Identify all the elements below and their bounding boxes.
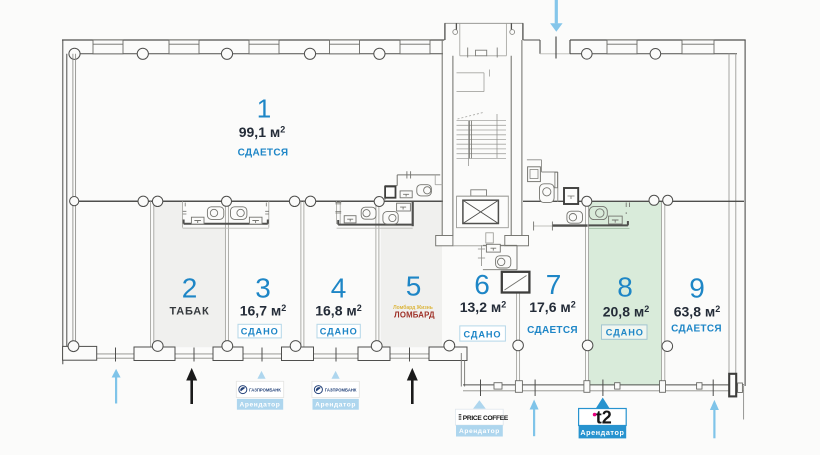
svg-text:1: 1 bbox=[257, 94, 271, 124]
svg-text:16,7 м2: 16,7 м2 bbox=[240, 303, 287, 319]
svg-text:СДАЕТСЯ: СДАЕТСЯ bbox=[238, 147, 289, 158]
svg-text:Арендатор: Арендатор bbox=[580, 428, 624, 437]
svg-text:4: 4 bbox=[331, 273, 347, 304]
svg-text:СДАЕТСЯ: СДАЕТСЯ bbox=[671, 324, 722, 335]
svg-text:63,8 м2: 63,8 м2 bbox=[674, 304, 721, 320]
svg-text:9: 9 bbox=[689, 273, 705, 304]
svg-text:ГАЗПРОМБАНК: ГАЗПРОМБАНК bbox=[325, 388, 357, 393]
svg-text:Арендатор: Арендатор bbox=[315, 401, 356, 408]
svg-text:ГАЗПРОМБАНК: ГАЗПРОМБАНК bbox=[249, 388, 281, 393]
svg-text:СДАНО: СДАНО bbox=[320, 326, 358, 336]
svg-text:ТАБАК: ТАБАК bbox=[169, 306, 209, 318]
svg-text:13,2 м2: 13,2 м2 bbox=[460, 299, 507, 315]
svg-text:7: 7 bbox=[546, 269, 562, 300]
svg-text:6: 6 bbox=[474, 269, 490, 300]
svg-text:8: 8 bbox=[617, 272, 633, 303]
svg-text:20,8 м2: 20,8 м2 bbox=[603, 304, 650, 320]
svg-text:17,6 м2: 17,6 м2 bbox=[529, 299, 576, 315]
svg-text:16,8 м2: 16,8 м2 bbox=[315, 303, 362, 319]
svg-text:СДАНО: СДАНО bbox=[464, 329, 502, 339]
svg-text:3: 3 bbox=[255, 273, 271, 304]
svg-text:ЛОМБАРД: ЛОМБАРД bbox=[394, 311, 435, 320]
svg-text:2: 2 bbox=[182, 273, 198, 304]
svg-text:Арендатор: Арендатор bbox=[240, 401, 281, 408]
svg-text:t2: t2 bbox=[596, 407, 612, 427]
svg-text:PRICE COFFEE: PRICE COFFEE bbox=[463, 415, 509, 422]
svg-text:5: 5 bbox=[406, 271, 422, 302]
svg-text:СДАНО: СДАНО bbox=[241, 326, 279, 336]
svg-text:СДАНО: СДАНО bbox=[606, 328, 644, 338]
svg-text:СДАЕТСЯ: СДАЕТСЯ bbox=[527, 325, 578, 336]
svg-text:99,1 м2: 99,1 м2 bbox=[239, 124, 286, 140]
svg-text:Арендатор: Арендатор bbox=[459, 428, 500, 435]
